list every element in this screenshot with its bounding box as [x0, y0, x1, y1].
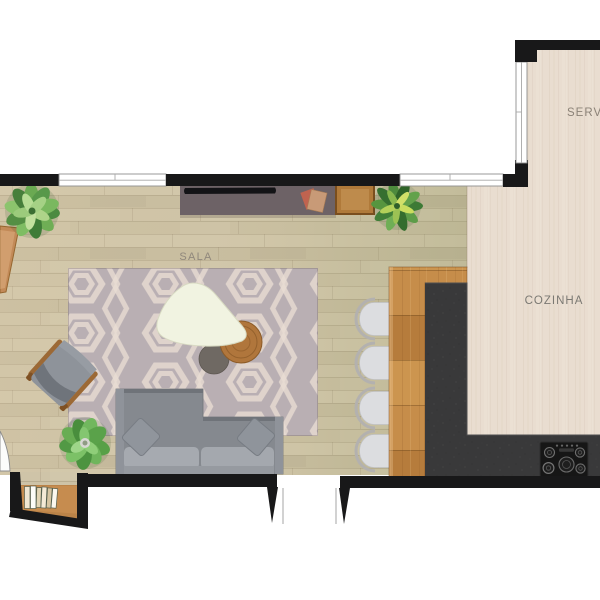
svg-text:SERVIÇO: SERVIÇO [567, 107, 600, 119]
svg-text:SALA: SALA [179, 251, 212, 263]
svg-text:COZINHA: COZINHA [525, 295, 584, 307]
